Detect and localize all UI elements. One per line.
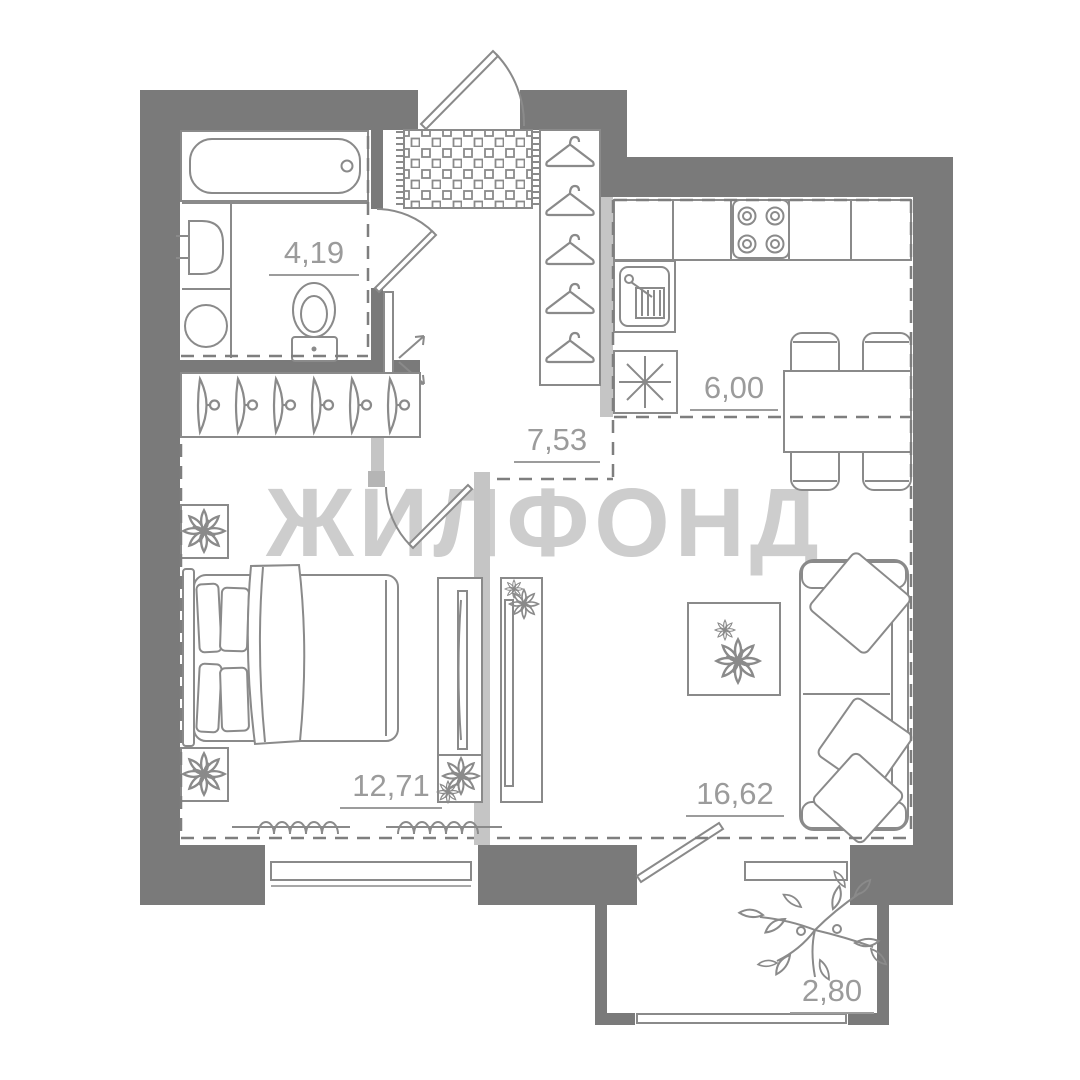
pillow-icon: [220, 668, 249, 732]
balcony-window: [637, 1014, 846, 1023]
bedroom-window: [271, 862, 471, 880]
kitchen-area-label: 6,00: [690, 371, 778, 411]
bedroom-area-label: 12,71: [340, 769, 442, 809]
kitchen-sink-icon: [614, 261, 675, 332]
dresser-icon: [437, 578, 482, 803]
hallway-area-label: 7,53: [514, 423, 600, 463]
wall-top-left: [140, 90, 418, 130]
wall-left: [140, 130, 180, 905]
refrigerator-icon: [614, 351, 677, 413]
plant-pot-icon: [181, 505, 228, 558]
doormat-icon: [404, 130, 532, 208]
wall-bathroom-upper: [371, 130, 383, 209]
entrance: [400, 51, 536, 208]
hallway-closet: [540, 130, 600, 385]
tv-stand-icon: [501, 578, 542, 802]
bedroom-furniture: [181, 373, 482, 803]
bedroom-door-icon: [386, 485, 472, 548]
plant-pot-icon: [181, 748, 228, 801]
entrance-door-icon: [421, 51, 524, 129]
pillow-icon: [196, 663, 222, 732]
toilet-icon: [292, 283, 337, 361]
bathtub-icon: [181, 131, 368, 201]
dining-table-icon: [784, 371, 911, 452]
bathroom-door-icon: [375, 209, 436, 292]
wall-right: [913, 197, 953, 905]
wall-balcony-left: [595, 903, 607, 1025]
kitchen-fixtures: [614, 200, 911, 490]
bathroom-sink-icon: [176, 221, 223, 274]
blanket-icon: [248, 565, 304, 744]
partition-cap: [368, 471, 385, 487]
washing-machine-icon: [185, 305, 227, 347]
floor-plan: ЖИЛФОНД: [0, 0, 1080, 1080]
coffee-table-icon: [688, 603, 780, 695]
bathroom-area-label: 4,19: [269, 236, 359, 276]
floor-plan-drawing: [0, 0, 1080, 1080]
wall-step: [600, 130, 627, 197]
living-room-window: [745, 862, 847, 880]
pillow-icon: [196, 583, 222, 652]
sofa-icon: [800, 551, 914, 845]
radiators: [232, 822, 502, 834]
dining-set: [784, 333, 911, 490]
double-bed-icon: [183, 565, 398, 746]
stove-icon: [733, 200, 789, 258]
partition-kitchen-closet: [600, 197, 613, 417]
pillow-icon: [220, 588, 249, 652]
wall-top-right: [520, 90, 627, 130]
living-room-area-label: 16,62: [686, 777, 784, 817]
wardrobe-icon: [181, 373, 420, 437]
balcony-area-label: 2,80: [790, 974, 874, 1014]
wall-bathroom-bottom: [155, 360, 420, 373]
wall-kitchen-top: [627, 157, 953, 197]
